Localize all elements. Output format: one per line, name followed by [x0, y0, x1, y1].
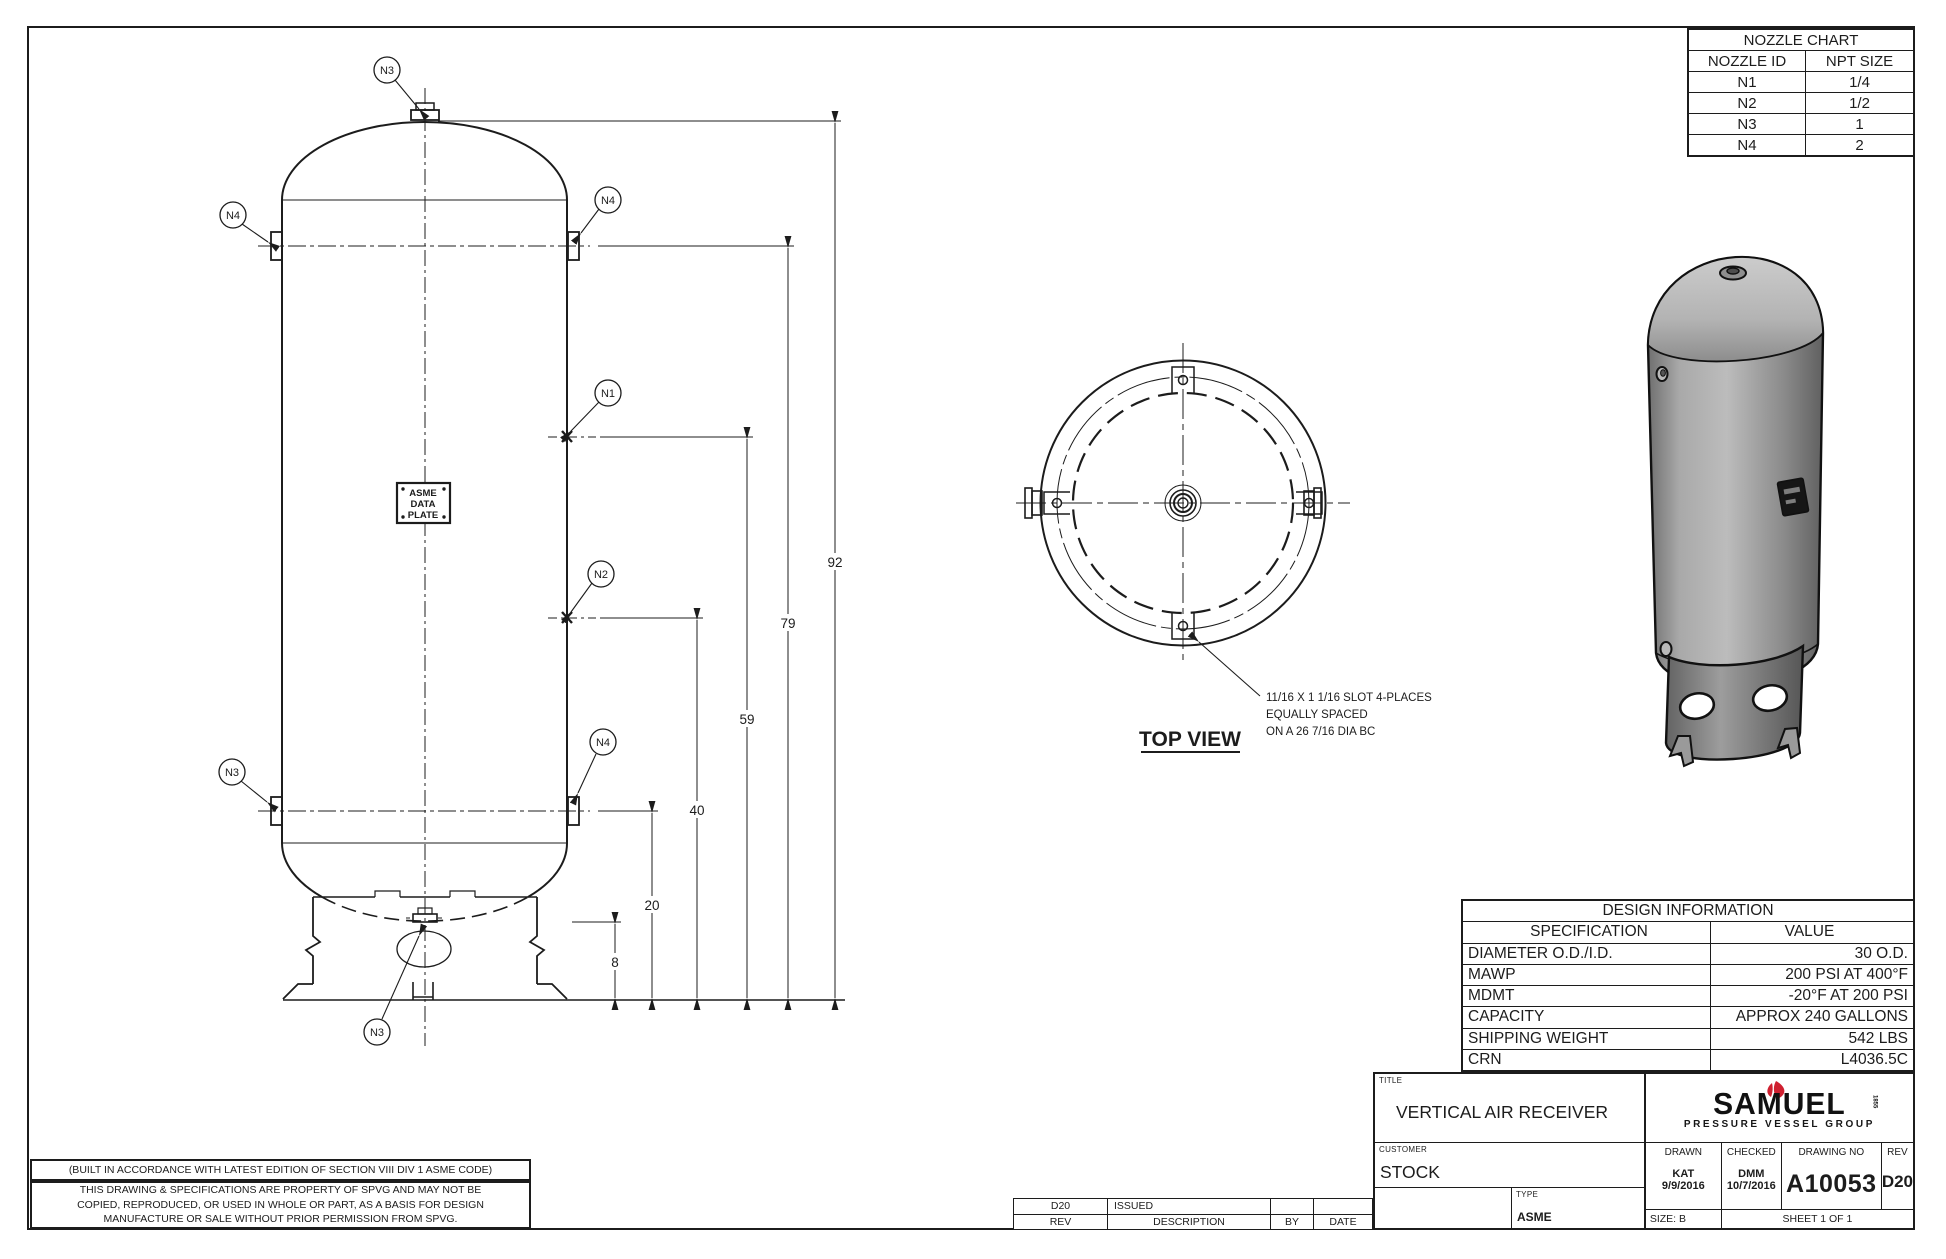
drawing-number: A10053: [1786, 1170, 1877, 1199]
drawn-by: KAT: [1672, 1168, 1694, 1180]
rev-cell: REV D20: [1882, 1143, 1913, 1209]
checked-by: DMM: [1738, 1168, 1764, 1180]
balloon-n4-upper-left: N4: [226, 210, 240, 222]
nozzle-chart-table: NOZZLE CHART NOZZLE ID NPT SIZE N1 1/4 N…: [1687, 28, 1915, 157]
slot-callout-line-2: EQUALLY SPACED: [1266, 709, 1368, 721]
dim-79: 79: [780, 616, 795, 631]
drawn-date: 9/9/2016: [1662, 1180, 1705, 1192]
type-value: ASME: [1517, 1210, 1552, 1224]
dim-40: 40: [689, 803, 704, 818]
table-row: MAWP 200 PSI AT 400°F: [1463, 964, 1913, 985]
checked-date: 10/7/2016: [1727, 1180, 1776, 1192]
nozzle-chart-title: NOZZLE CHART: [1689, 30, 1913, 50]
dim-59: 59: [739, 712, 754, 727]
checked-cell: CHECKED DMM 10/7/2016: [1722, 1143, 1782, 1209]
design-info-title: DESIGN INFORMATION: [1463, 901, 1913, 921]
plate-line-3: PLATE: [408, 510, 438, 521]
slot-callout-line-1: 11/16 X 1 1/16 SLOT 4-PLACES: [1266, 692, 1432, 704]
balloon-n3-top: N3: [380, 65, 394, 77]
balloon-n4-upper-right: N4: [601, 195, 615, 207]
slot-callout-line-3: ON A 26 7/16 DIA BC: [1266, 726, 1375, 738]
top-view: 11/16 X 1 1/16 SLOT 4-PLACES EQUALLY SPA…: [1016, 343, 1432, 752]
npt-size-header: NPT SIZE: [1805, 51, 1913, 71]
balloon-n1: N1: [601, 388, 615, 400]
revision-entry-row: D20 ISSUED: [1014, 1199, 1372, 1214]
title-block: TITLE VERTICAL AIR RECEIVER CUSTOMER STO…: [1373, 1072, 1915, 1230]
dimension-labels: [604, 553, 848, 970]
vessel-3d-render: [1648, 257, 1823, 766]
type-cell: TYPE ASME: [1512, 1188, 1644, 1228]
spec-header: SPECIFICATION: [1463, 922, 1710, 942]
customer-label: CUSTOMER: [1379, 1145, 1427, 1154]
table-row: CRN L4036.5C: [1463, 1049, 1913, 1070]
design-information-table: DESIGN INFORMATION SPECIFICATION VALUE D…: [1461, 899, 1915, 1072]
drawing-no-cell: DRAWING NO A10053: [1782, 1143, 1882, 1209]
nozzle-id-header: NOZZLE ID: [1689, 51, 1805, 71]
value-header: VALUE: [1710, 922, 1913, 942]
balloon-n3-bottom: N3: [370, 1027, 384, 1039]
balloon-leaders: [241, 80, 599, 1019]
plate-line-1: ASME: [409, 488, 436, 499]
customer-cell: CUSTOMER STOCK: [1375, 1143, 1644, 1188]
table-row: N1 1/4: [1689, 71, 1913, 92]
balloon-n3-lower-left: N3: [225, 767, 239, 779]
table-row: MDMT -20°F AT 200 PSI: [1463, 985, 1913, 1006]
balloon-n2: N2: [594, 569, 608, 581]
table-row: N2 1/2: [1689, 92, 1913, 113]
company-logo: SAMUEL 1855 PRESSURE VESSEL GROUP: [1646, 1074, 1913, 1143]
dim-20: 20: [644, 898, 659, 913]
property-note: THIS DRAWING & SPECIFICATIONS ARE PROPER…: [30, 1181, 531, 1229]
table-row: N3 1: [1689, 113, 1913, 134]
front-view: 92 79 59 40 20 8 ASME DATA PLATE: [219, 57, 848, 1046]
title-label: TITLE: [1379, 1076, 1402, 1085]
asme-data-plate: ASME DATA PLATE: [397, 483, 450, 523]
table-row: CAPACITY APPROX 240 GALLONS: [1463, 1006, 1913, 1027]
asme-code-note: (BUILT IN ACCORDANCE WITH LATEST EDITION…: [30, 1159, 531, 1181]
type-label: TYPE: [1516, 1190, 1538, 1199]
top-view-label: TOP VIEW: [1139, 728, 1241, 751]
dim-92: 92: [827, 555, 842, 570]
revision-value: D20: [1882, 1172, 1913, 1192]
plate-line-2: DATA: [411, 499, 436, 510]
drawn-cell: DRAWN KAT 9/9/2016: [1646, 1143, 1722, 1209]
customer-value: STOCK: [1380, 1162, 1440, 1183]
balloon-n4-lower-right: N4: [596, 737, 610, 749]
logo-name: SAMUEL: [1664, 1091, 1894, 1120]
revision-table: D20 ISSUED REV DESCRIPTION BY DATE: [1013, 1198, 1373, 1230]
sheet-cell: SHEET 1 OF 1: [1722, 1210, 1913, 1228]
drawing-title: VERTICAL AIR RECEIVER: [1396, 1102, 1608, 1123]
size-cell: SIZE: B: [1646, 1210, 1722, 1228]
table-row: N4 2: [1689, 134, 1913, 155]
dimension-lines: [615, 123, 835, 998]
empty-cell: [1375, 1188, 1512, 1228]
title-cell: TITLE VERTICAL AIR RECEIVER: [1375, 1074, 1644, 1143]
table-row: DIAMETER O.D./I.D. 30 O.D.: [1463, 943, 1913, 964]
drawing-sheet: 92 79 59 40 20 8 ASME DATA PLATE: [0, 0, 1946, 1259]
table-row: SHIPPING WEIGHT 542 LBS: [1463, 1028, 1913, 1049]
revision-header-row: REV DESCRIPTION BY DATE: [1014, 1214, 1372, 1230]
logo-year: 1855: [1871, 1095, 1877, 1108]
dim-8: 8: [611, 955, 619, 970]
